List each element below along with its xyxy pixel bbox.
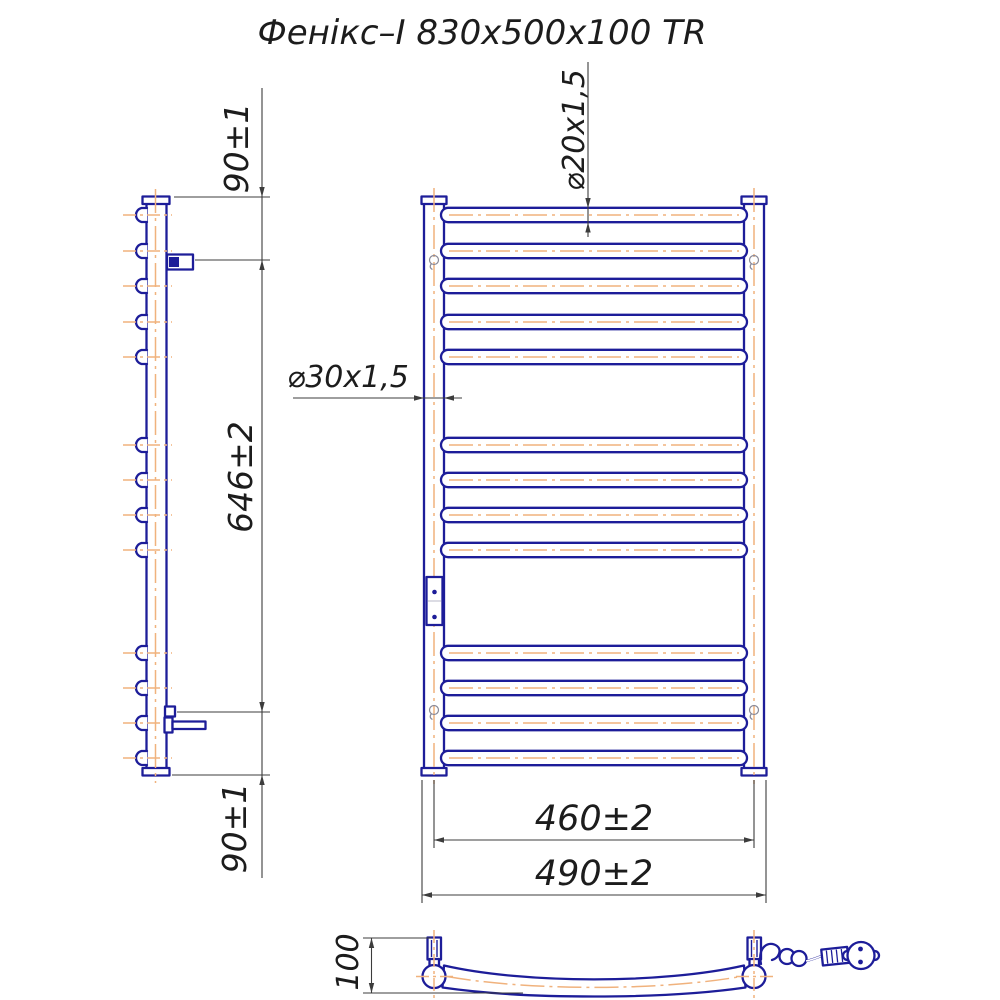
drawing-canvas: Фенікс–І 830x500x100 TR bbox=[0, 0, 1000, 1000]
plug-pin bbox=[858, 960, 863, 965]
drawing-title: Фенікс–І 830x500x100 TR bbox=[257, 13, 706, 53]
side-heating-element bbox=[165, 718, 206, 733]
bottom-tube bbox=[443, 966, 746, 997]
side-top-bracket bbox=[167, 255, 193, 270]
dim-overall-width-label: 490±2 bbox=[535, 854, 653, 894]
power-cord bbox=[760, 944, 826, 966]
dim-axis-width: 460±2 bbox=[434, 780, 754, 848]
power-plug-head bbox=[843, 942, 879, 969]
dim-span-label: 646±2 bbox=[221, 421, 260, 533]
bottom-view bbox=[416, 930, 879, 998]
dim-top-offset-label: 90±1 bbox=[217, 103, 256, 194]
side-bottom-bracket bbox=[165, 707, 175, 717]
dim-vertical-chain: 90±1 646±2 90±1 bbox=[172, 88, 270, 878]
dim-depth-label: 100 bbox=[331, 933, 366, 990]
front-view bbox=[422, 188, 767, 784]
dim-post-tube-label: ⌀30x1,5 bbox=[287, 360, 409, 395]
side-view bbox=[123, 189, 206, 783]
dim-bottom-offset-label: 90±1 bbox=[215, 783, 254, 874]
front-control-bracket bbox=[427, 577, 443, 625]
front-rungs bbox=[441, 208, 747, 765]
plug-pin bbox=[858, 947, 863, 952]
technical-drawing: Фенікс–І 830x500x100 TR bbox=[0, 0, 1000, 1000]
dim-axis-width-label: 460±2 bbox=[535, 799, 653, 839]
dim-rung-tube-label: ⌀20x1,5 bbox=[557, 69, 592, 191]
dimensions: 90±1 646±2 90±1 ⌀20x1,5 ⌀30x1,5 460±2 bbox=[172, 62, 766, 993]
